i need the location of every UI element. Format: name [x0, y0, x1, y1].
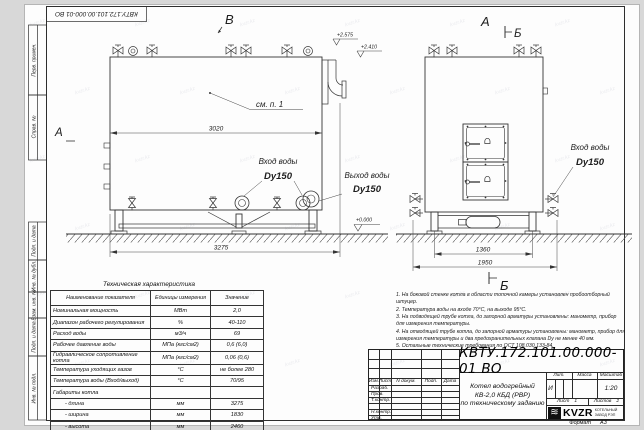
- stamp-podp-data-1: Подп. и дата: [32, 225, 38, 257]
- view-a-left-label: А: [54, 127, 63, 139]
- view-a-top-label: А: [480, 14, 490, 29]
- tech-table-cell: %: [151, 317, 211, 328]
- drawing-sheet: kvzr.kzkvzr.kzkvzr.kzkvzr.kzkvzr.kzkvzr.…: [0, 0, 644, 430]
- tb-sheets-value: 2: [616, 399, 619, 404]
- dim-3020: 3020: [209, 126, 224, 133]
- tb-sheet: Лист 1: [546, 398, 588, 405]
- tech-table-cell: МПа (кгс/см2): [151, 351, 211, 364]
- tech-table-cell: м3/ч: [151, 328, 211, 339]
- tb-row-utv: Утв.: [369, 415, 395, 421]
- tech-table-row: - длинамм3275: [51, 398, 264, 409]
- tech-table-row: Расход водым3/ч69: [51, 328, 264, 339]
- side-view-valves: [113, 45, 292, 211]
- company-subtitle: КОТЕЛЬНЫЙ ЗАВОД РЭП: [595, 408, 618, 416]
- view-b-label: В: [225, 12, 234, 27]
- tech-table-cell: Температура воды (Вход/выход): [51, 375, 151, 386]
- note-line: 2. Температура воды на входе 70°С, на вы…: [396, 307, 625, 314]
- product-name-line1: Котел водогрейный: [470, 383, 535, 392]
- side-view-pipe-labels: Вход воды Dy150 Выход воды Dy150: [244, 157, 390, 201]
- tb-col-data: Дата: [441, 378, 459, 385]
- tech-table-row: Гидравлическое сопротивление котлаМПа (к…: [51, 351, 264, 364]
- dim-3275: 3275: [214, 245, 229, 252]
- technical-notes: 1. На боковой стенке котла в области топ…: [396, 292, 625, 351]
- boiler-front-view: [425, 57, 548, 234]
- tb-mass-label: Масса: [572, 372, 597, 379]
- tech-table-title: Техническая характеристика: [50, 281, 248, 288]
- tb-col-podp: Подп.: [421, 378, 441, 385]
- elevation-0000: +0.000: [356, 218, 372, 224]
- tech-table-cell: Номинальная мощность: [51, 306, 151, 317]
- tech-table-cell: Диапазон рабочего регулирования: [51, 317, 151, 328]
- furnace-door-upper: [463, 124, 508, 162]
- tech-col-name: Наименование показателя: [51, 291, 151, 306]
- tb-col-docnum: N докум.: [391, 378, 421, 385]
- format-note: Формат А3: [552, 420, 624, 426]
- tech-col-value: Значение: [211, 291, 264, 306]
- tb-sheets-label: Листов: [594, 399, 611, 404]
- see-note-callout: см. п. 1: [209, 92, 303, 110]
- tech-table-cell: Расход воды: [51, 328, 151, 339]
- tech-table-cell: [151, 387, 211, 398]
- tech-table-cell: 0,06 (0,6): [211, 351, 264, 364]
- tech-table-cell: 70/95: [211, 375, 264, 386]
- boiler-side-view: [104, 47, 346, 235]
- company-sub-line2: ЗАВОД РЭП: [595, 413, 616, 417]
- tb-sheet-label: Лист: [557, 399, 569, 404]
- water-in-dn-front: Dy150: [576, 157, 605, 168]
- format-value: А3: [600, 420, 607, 426]
- tech-table-row: Габариты котла: [51, 387, 264, 398]
- tech-table-cell: мм: [151, 410, 211, 421]
- tech-table-row: Рабочее давление водыМПа (кгс/см2)0,6 (6…: [51, 340, 264, 351]
- tech-table-cell: 3275: [211, 398, 264, 409]
- front-view-pipe-labels: Вход воды Dy150: [553, 143, 610, 197]
- note-line: 3. На подводящей трубе котла, до запорно…: [396, 314, 625, 328]
- tb-scale-value: 1:20: [597, 379, 625, 398]
- tech-table-cell: Температура уходящих газов: [51, 364, 151, 375]
- tech-table-row: - высотамм2460: [51, 421, 264, 430]
- tb-sheets: Листов 2: [588, 398, 625, 405]
- see-note-label: см. п. 1: [256, 100, 283, 109]
- stamp-inv-dubl: Инв. № дубл.: [32, 261, 38, 292]
- tb-lit-label: Лит.: [546, 372, 572, 379]
- tech-table-cell: 2,0: [211, 306, 264, 317]
- tech-table-cell: - ширина: [51, 410, 151, 421]
- tech-table-row: Диапазон рабочего регулирования%40-110: [51, 317, 264, 328]
- tb-doc-number: КВТУ.172.101.00.000-01 ВО: [459, 350, 625, 372]
- tech-table-cell: - длина: [51, 398, 151, 409]
- tech-table-cell: 0,6 (6,0): [211, 340, 264, 351]
- tech-table-row: Температура уходящих газов°Сне более 280: [51, 364, 264, 375]
- kvzr-logo-icon: ≋: [548, 407, 561, 419]
- stamp-sprav-no: Справ. №: [32, 115, 38, 138]
- tech-col-units: Единицы измерения: [151, 291, 211, 306]
- tech-table-cell: 2460: [211, 421, 264, 430]
- tech-table-cell: °С: [151, 364, 211, 375]
- tech-table-cell: Рабочее давление воды: [51, 340, 151, 351]
- product-name-line2: КВ-2,0 КБД (РВР): [475, 392, 530, 401]
- furnace-door-lower: [463, 162, 508, 200]
- water-out-dn: Dy150: [353, 184, 382, 195]
- water-in-label: Вход воды: [259, 157, 298, 166]
- tb-col-izm: Изм.: [369, 378, 379, 385]
- tech-table-cell: мм: [151, 398, 211, 409]
- note-line: 1. На боковой стенке котла в области топ…: [396, 292, 625, 306]
- tech-table-cell: °С: [151, 375, 211, 386]
- water-in-label-front: Вход воды: [571, 143, 610, 152]
- tb-col-list: Лист: [379, 378, 391, 385]
- stamp-podp-data-2: Подп. и дата: [32, 321, 38, 353]
- tech-table-cell: - высота: [51, 421, 151, 430]
- tech-table-row: Номинальная мощностьМВт2,0: [51, 306, 264, 317]
- company-name: KVZR: [563, 407, 593, 419]
- company-logo: ≋ KVZR КОТЕЛЬНЫЙ ЗАВОД РЭП: [548, 405, 624, 420]
- tech-table-cell: 40-110: [211, 317, 264, 328]
- tech-characteristics: Техническая характеристика Наименование …: [50, 281, 248, 430]
- tech-table: Наименование показателя Единицы измерени…: [50, 290, 264, 430]
- water-out-label: Выход воды: [345, 171, 390, 180]
- tech-table-row: Температура воды (Вход/выход)°С70/95: [51, 375, 264, 386]
- tech-table-row: - ширинамм1830: [51, 410, 264, 421]
- elevation-2410: +2.410: [361, 45, 377, 51]
- format-label: Формат: [569, 420, 591, 426]
- stamp-inv-podl: Инв. № подл.: [32, 372, 38, 403]
- tech-table-cell: Гидравлическое сопротивление котла: [51, 351, 151, 364]
- stamp-vzam-inv: Взам. инв. №: [32, 289, 38, 321]
- section-b-bottom-label: Б: [500, 278, 509, 293]
- product-name-line3: по техническому заданию: [461, 400, 545, 409]
- stamp-perv-primen: Перв. примен.: [32, 43, 38, 76]
- section-b-top-label: Б: [514, 28, 522, 40]
- front-view-valves: [410, 45, 558, 217]
- elevation-marks: +2.575 +2.410 +0.000: [333, 33, 382, 232]
- tech-table-cell: МВт: [151, 306, 211, 317]
- tech-table-header-row: Наименование показателя Единицы измерени…: [51, 291, 264, 306]
- dim-1360: 1360: [476, 247, 491, 254]
- note-line: 4. На отводящей трубе котла, до запорной…: [396, 329, 625, 343]
- title-block: Изм. Лист N докум. Подп. Дата Разраб. Пр…: [368, 349, 624, 420]
- elevation-2575: +2.575: [337, 33, 353, 39]
- tech-table-cell: МПа (кгс/см2): [151, 340, 211, 351]
- tb-scale-label: Масштаб: [597, 372, 625, 379]
- tech-table-cell: [211, 387, 264, 398]
- tb-sheet-value: 1: [574, 399, 577, 404]
- ground-line-right: [396, 234, 632, 243]
- dim-1950: 1950: [478, 260, 493, 267]
- tech-table-cell: 69: [211, 328, 264, 339]
- flue-elbow: [322, 60, 346, 104]
- tech-table-cell: 1830: [211, 410, 264, 421]
- tech-table-cell: не более 280: [211, 364, 264, 375]
- tb-product-name: Котел водогрейный КВ-2,0 КБД (РВР) по те…: [460, 373, 545, 419]
- tb-row-tkontr: Т.контр.: [369, 397, 395, 403]
- tb-lit-value: И: [546, 379, 555, 398]
- ground-line-left: [66, 234, 388, 243]
- tech-table-cell: Габариты котла: [51, 387, 151, 398]
- doc-number-top: КВТУ.172.101.00.000-01 ВО: [55, 10, 138, 17]
- tech-table-cell: мм: [151, 421, 211, 430]
- water-in-dn: Dy150: [264, 171, 293, 182]
